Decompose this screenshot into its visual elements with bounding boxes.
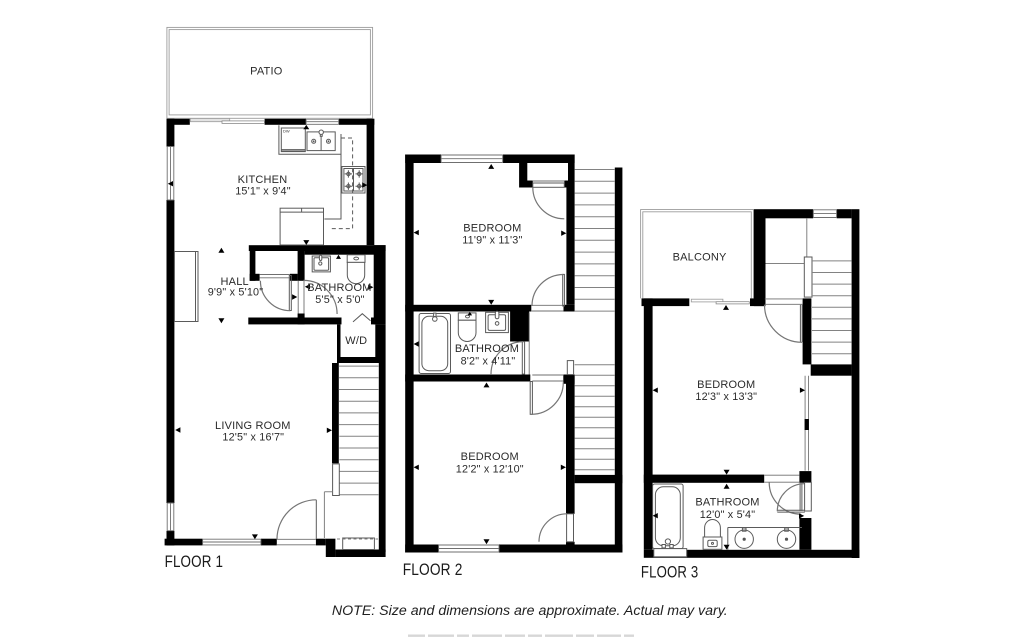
svg-text:BATHROOM: BATHROOM [695,497,759,509]
svg-text:8'2" x 4'11": 8'2" x 4'11" [461,355,516,367]
svg-text:BEDROOM: BEDROOM [463,223,521,235]
svg-text:12'5" x 16'7": 12'5" x 16'7" [222,432,284,444]
svg-text:12'0" x 5'4": 12'0" x 5'4" [700,509,756,521]
svg-text:BALCONY: BALCONY [673,252,727,264]
svg-text:FLOOR 3: FLOOR 3 [641,564,699,582]
svg-text:BATHROOM: BATHROOM [455,343,519,355]
svg-text:DW: DW [283,129,290,134]
svg-text:W/D: W/D [345,335,367,347]
svg-text:BEDROOM: BEDROOM [461,451,519,463]
svg-text:LIVING ROOM: LIVING ROOM [215,420,291,432]
svg-text:12'3" x 13'3": 12'3" x 13'3" [695,391,757,403]
svg-text:FLOOR 2: FLOOR 2 [403,561,463,579]
svg-text:11'9" x 11'3": 11'9" x 11'3" [462,235,522,247]
svg-text:15'1" x 9'4": 15'1" x 9'4" [235,186,291,198]
svg-text:KITCHEN: KITCHEN [238,174,288,186]
svg-text:FLOOR 1: FLOOR 1 [165,553,224,571]
svg-text:12'2" x 12'10": 12'2" x 12'10" [456,463,524,475]
svg-text:BEDROOM: BEDROOM [697,379,755,391]
svg-text:BATHROOM: BATHROOM [307,282,371,294]
svg-text:NOTE: Size and dimensions are: NOTE: Size and dimensions are approximat… [332,603,728,619]
svg-text:5'5" x 5'0": 5'5" x 5'0" [315,294,364,306]
svg-text:9'9" x 5'10": 9'9" x 5'10" [208,287,264,299]
svg-text:PATIO: PATIO [250,66,283,78]
